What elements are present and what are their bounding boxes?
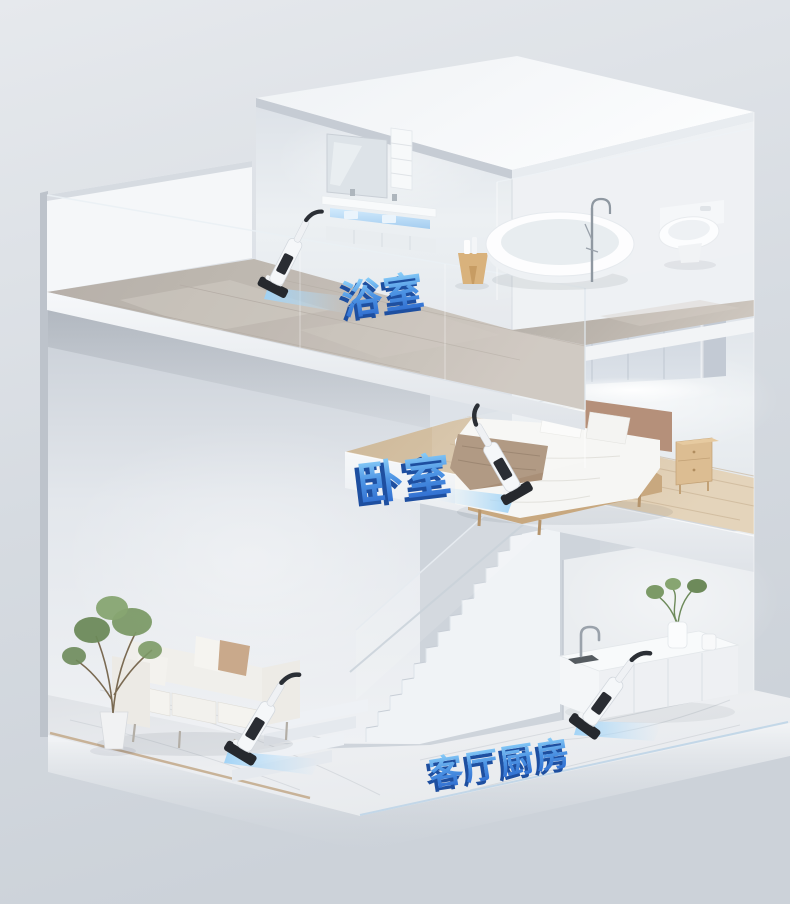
towel [344, 211, 358, 219]
drawer-knob [693, 451, 696, 454]
cutaway-house-illustration: 浴室 浴室 卧室 卧室 客厅厨房 客厅厨房 [0, 0, 790, 904]
vase [668, 622, 687, 648]
toilet-base [678, 243, 702, 263]
basin-faucet [350, 189, 355, 196]
tub-basin [501, 219, 619, 265]
basin-faucet [392, 194, 397, 201]
product-render-scene: 浴室 浴室 卧室 卧室 客厅厨房 客厅厨房 [0, 0, 790, 904]
small-kettle [702, 634, 716, 650]
drawer-knob [693, 469, 696, 472]
plant-foliage [687, 579, 707, 593]
plant-foliage [138, 641, 162, 659]
plant-foliage [74, 617, 110, 643]
toiletry-bottle [464, 240, 470, 254]
toiletry-bottle [472, 237, 477, 254]
towel [382, 215, 396, 223]
plant-foliage [62, 647, 86, 665]
tan-pillow [218, 640, 250, 676]
nightstand-front [676, 438, 712, 485]
flush-button [700, 206, 711, 211]
plant-foliage [665, 578, 681, 590]
pillow [586, 412, 630, 444]
plant-foliage [646, 585, 664, 599]
left-wall-outer-edge [40, 191, 48, 737]
plant-pot [100, 712, 128, 749]
plant-foliage [96, 596, 128, 620]
